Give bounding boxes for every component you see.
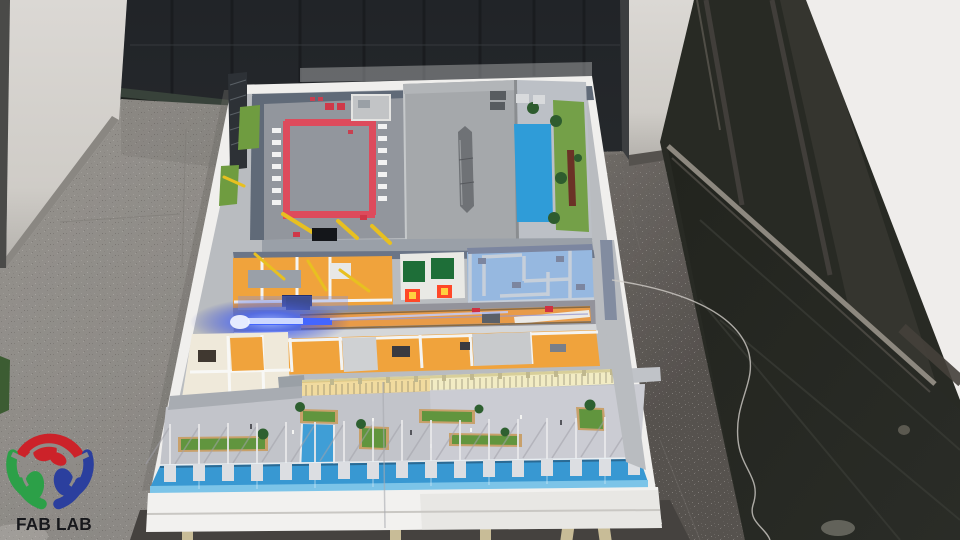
svg-text:FAB LAB: FAB LAB xyxy=(16,514,92,534)
